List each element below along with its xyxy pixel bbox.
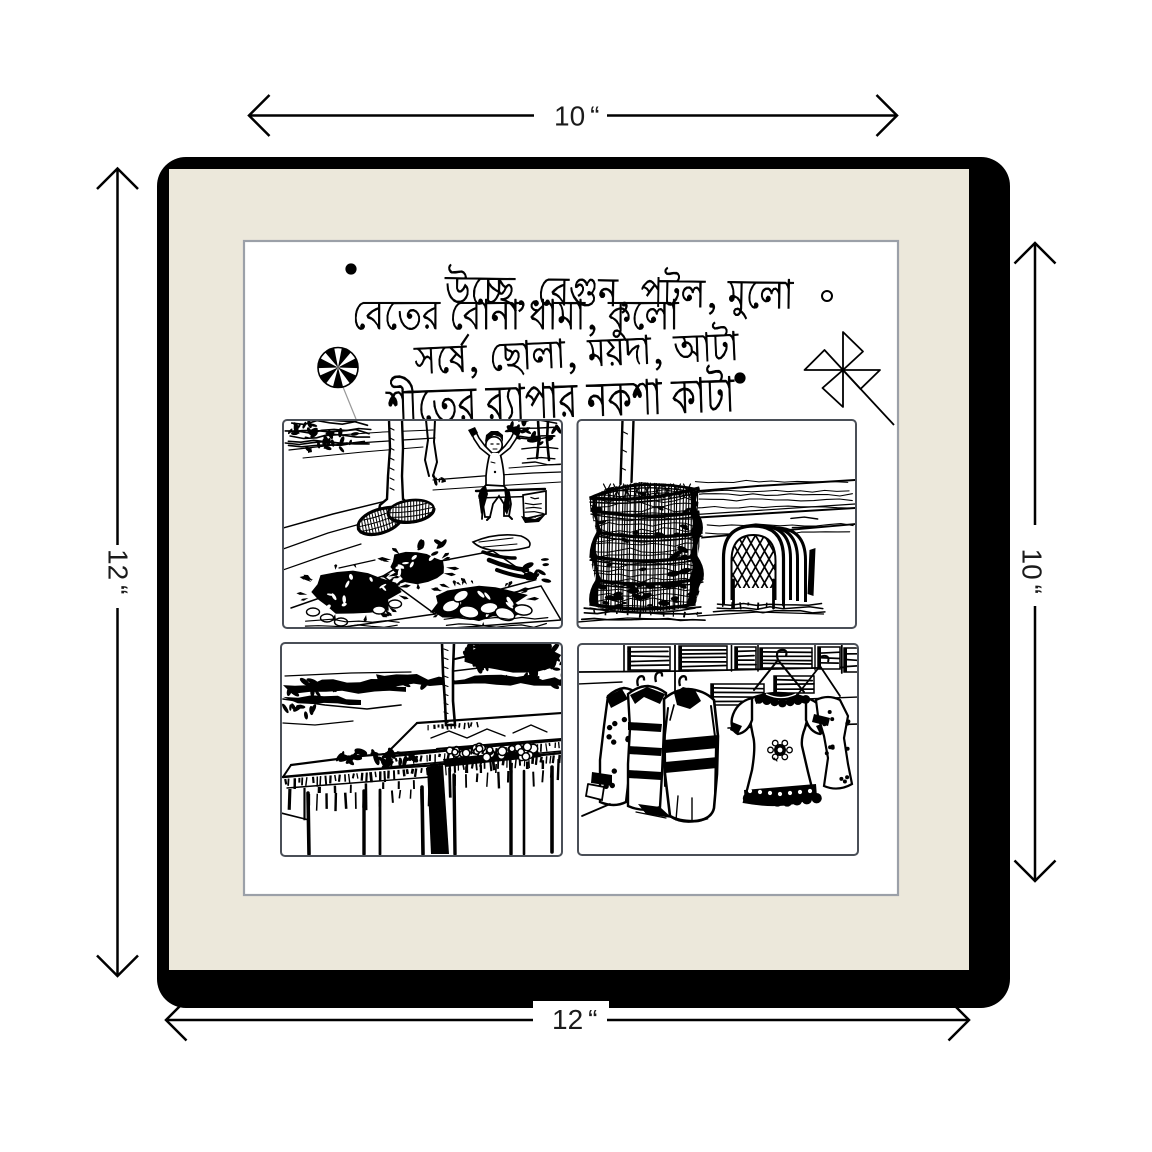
svg-text:10“: 10“ [554, 101, 599, 132]
svg-text:12“: 12“ [552, 1004, 597, 1035]
svg-text:12“: 12“ [103, 549, 134, 594]
svg-text:10“: 10“ [1017, 549, 1048, 594]
